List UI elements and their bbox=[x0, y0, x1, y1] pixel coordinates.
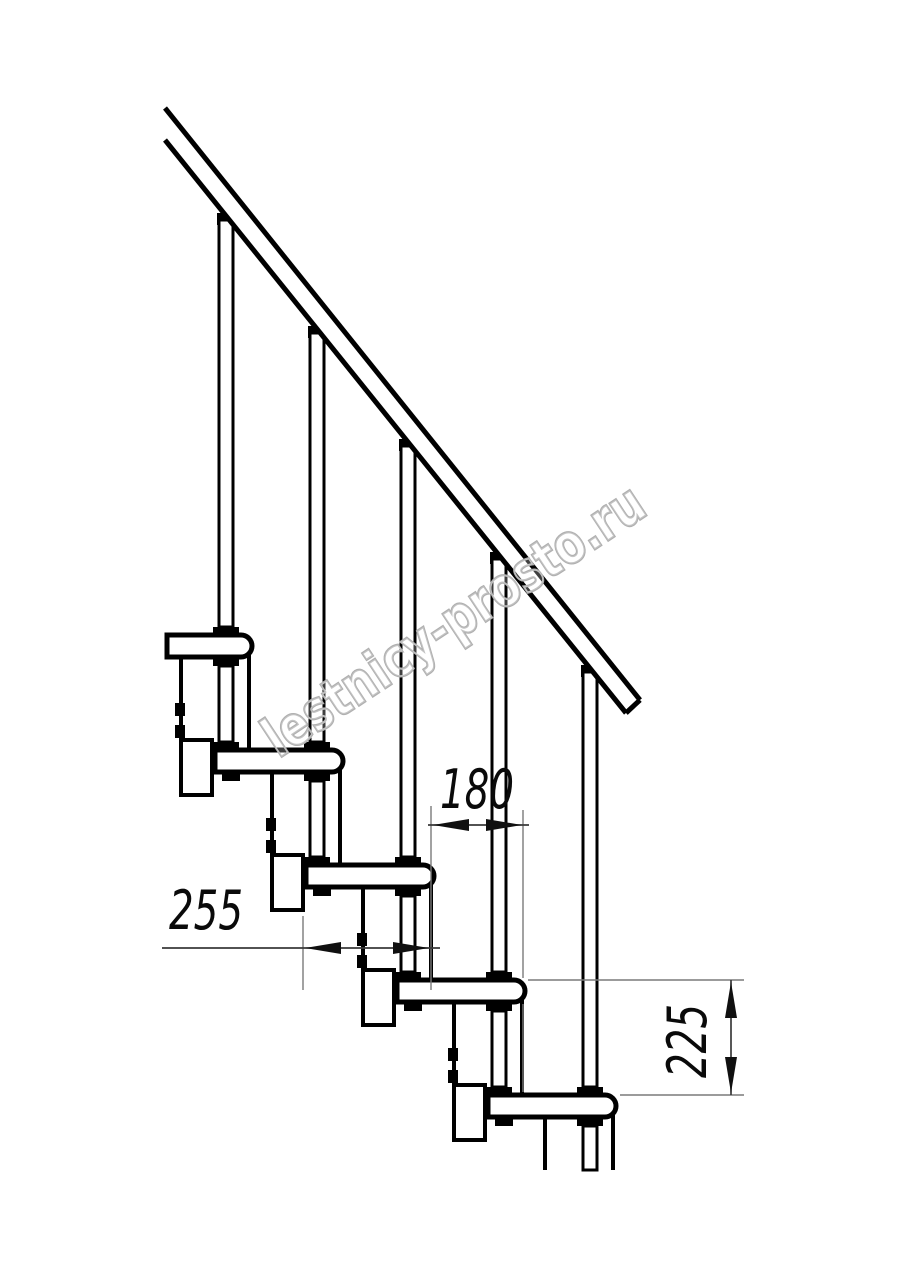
bolt bbox=[357, 955, 367, 968]
dimension-label-180: 180 bbox=[440, 758, 514, 821]
through-rod bbox=[219, 666, 233, 742]
rod-foot bbox=[213, 742, 239, 750]
tread-5 bbox=[488, 1095, 616, 1117]
through-rod bbox=[492, 1011, 506, 1087]
column-module-3 bbox=[363, 886, 431, 982]
under-tread-bolt bbox=[313, 887, 331, 896]
bracket-3 bbox=[363, 970, 394, 1025]
rod-cap bbox=[577, 1117, 603, 1126]
baluster-foot bbox=[486, 972, 512, 980]
rod-cap bbox=[486, 1002, 512, 1011]
bracket-1 bbox=[181, 740, 212, 795]
bolt bbox=[448, 1070, 458, 1083]
tread-4 bbox=[397, 980, 525, 1002]
tread-1 bbox=[167, 635, 252, 657]
through-rod-cut bbox=[583, 1126, 597, 1170]
rod-cap bbox=[213, 657, 239, 666]
under-tread-bolt bbox=[222, 772, 240, 781]
bracket-2 bbox=[272, 855, 303, 910]
baluster-foot bbox=[395, 857, 421, 865]
staircase-drawing-canvas: 255 180 225 lestnicy-prosto.ru bbox=[0, 0, 914, 1280]
arrowhead-top bbox=[725, 982, 737, 1018]
rod-cap bbox=[395, 887, 421, 896]
baluster-foot bbox=[213, 627, 239, 635]
bolt bbox=[266, 818, 276, 831]
dimension-label-255: 255 bbox=[169, 879, 243, 942]
arrowhead-bottom bbox=[725, 1057, 737, 1093]
bolt bbox=[175, 703, 185, 716]
column-module-2 bbox=[272, 771, 340, 867]
under-tread-bolt bbox=[495, 1117, 513, 1126]
tread-3 bbox=[306, 865, 434, 887]
bolt bbox=[448, 1048, 458, 1061]
under-tread-bolt bbox=[404, 1002, 422, 1011]
bolt bbox=[266, 840, 276, 853]
column-module-4 bbox=[454, 1001, 522, 1097]
through-rod bbox=[401, 896, 415, 972]
baluster-5 bbox=[577, 665, 603, 1095]
rod-cap bbox=[304, 772, 330, 781]
baluster-foot bbox=[577, 1087, 603, 1095]
bolt bbox=[357, 933, 367, 946]
baluster-1 bbox=[213, 213, 239, 635]
column-module-1 bbox=[181, 656, 249, 752]
rod-foot bbox=[395, 972, 421, 980]
bolt bbox=[175, 725, 185, 738]
bracket-4 bbox=[454, 1085, 485, 1140]
rod-foot bbox=[304, 857, 330, 865]
rod-foot bbox=[486, 1087, 512, 1095]
staircase-side-view-drawing: 255 180 225 lestnicy-prosto.ru bbox=[0, 0, 914, 1280]
dimension-label-225: 225 bbox=[656, 1004, 719, 1078]
arrowhead-left bbox=[305, 942, 341, 954]
baluster-pole bbox=[219, 220, 233, 627]
through-rod bbox=[310, 781, 324, 857]
baluster-pole bbox=[583, 672, 597, 1087]
dimension-rise: 225 bbox=[528, 980, 744, 1095]
